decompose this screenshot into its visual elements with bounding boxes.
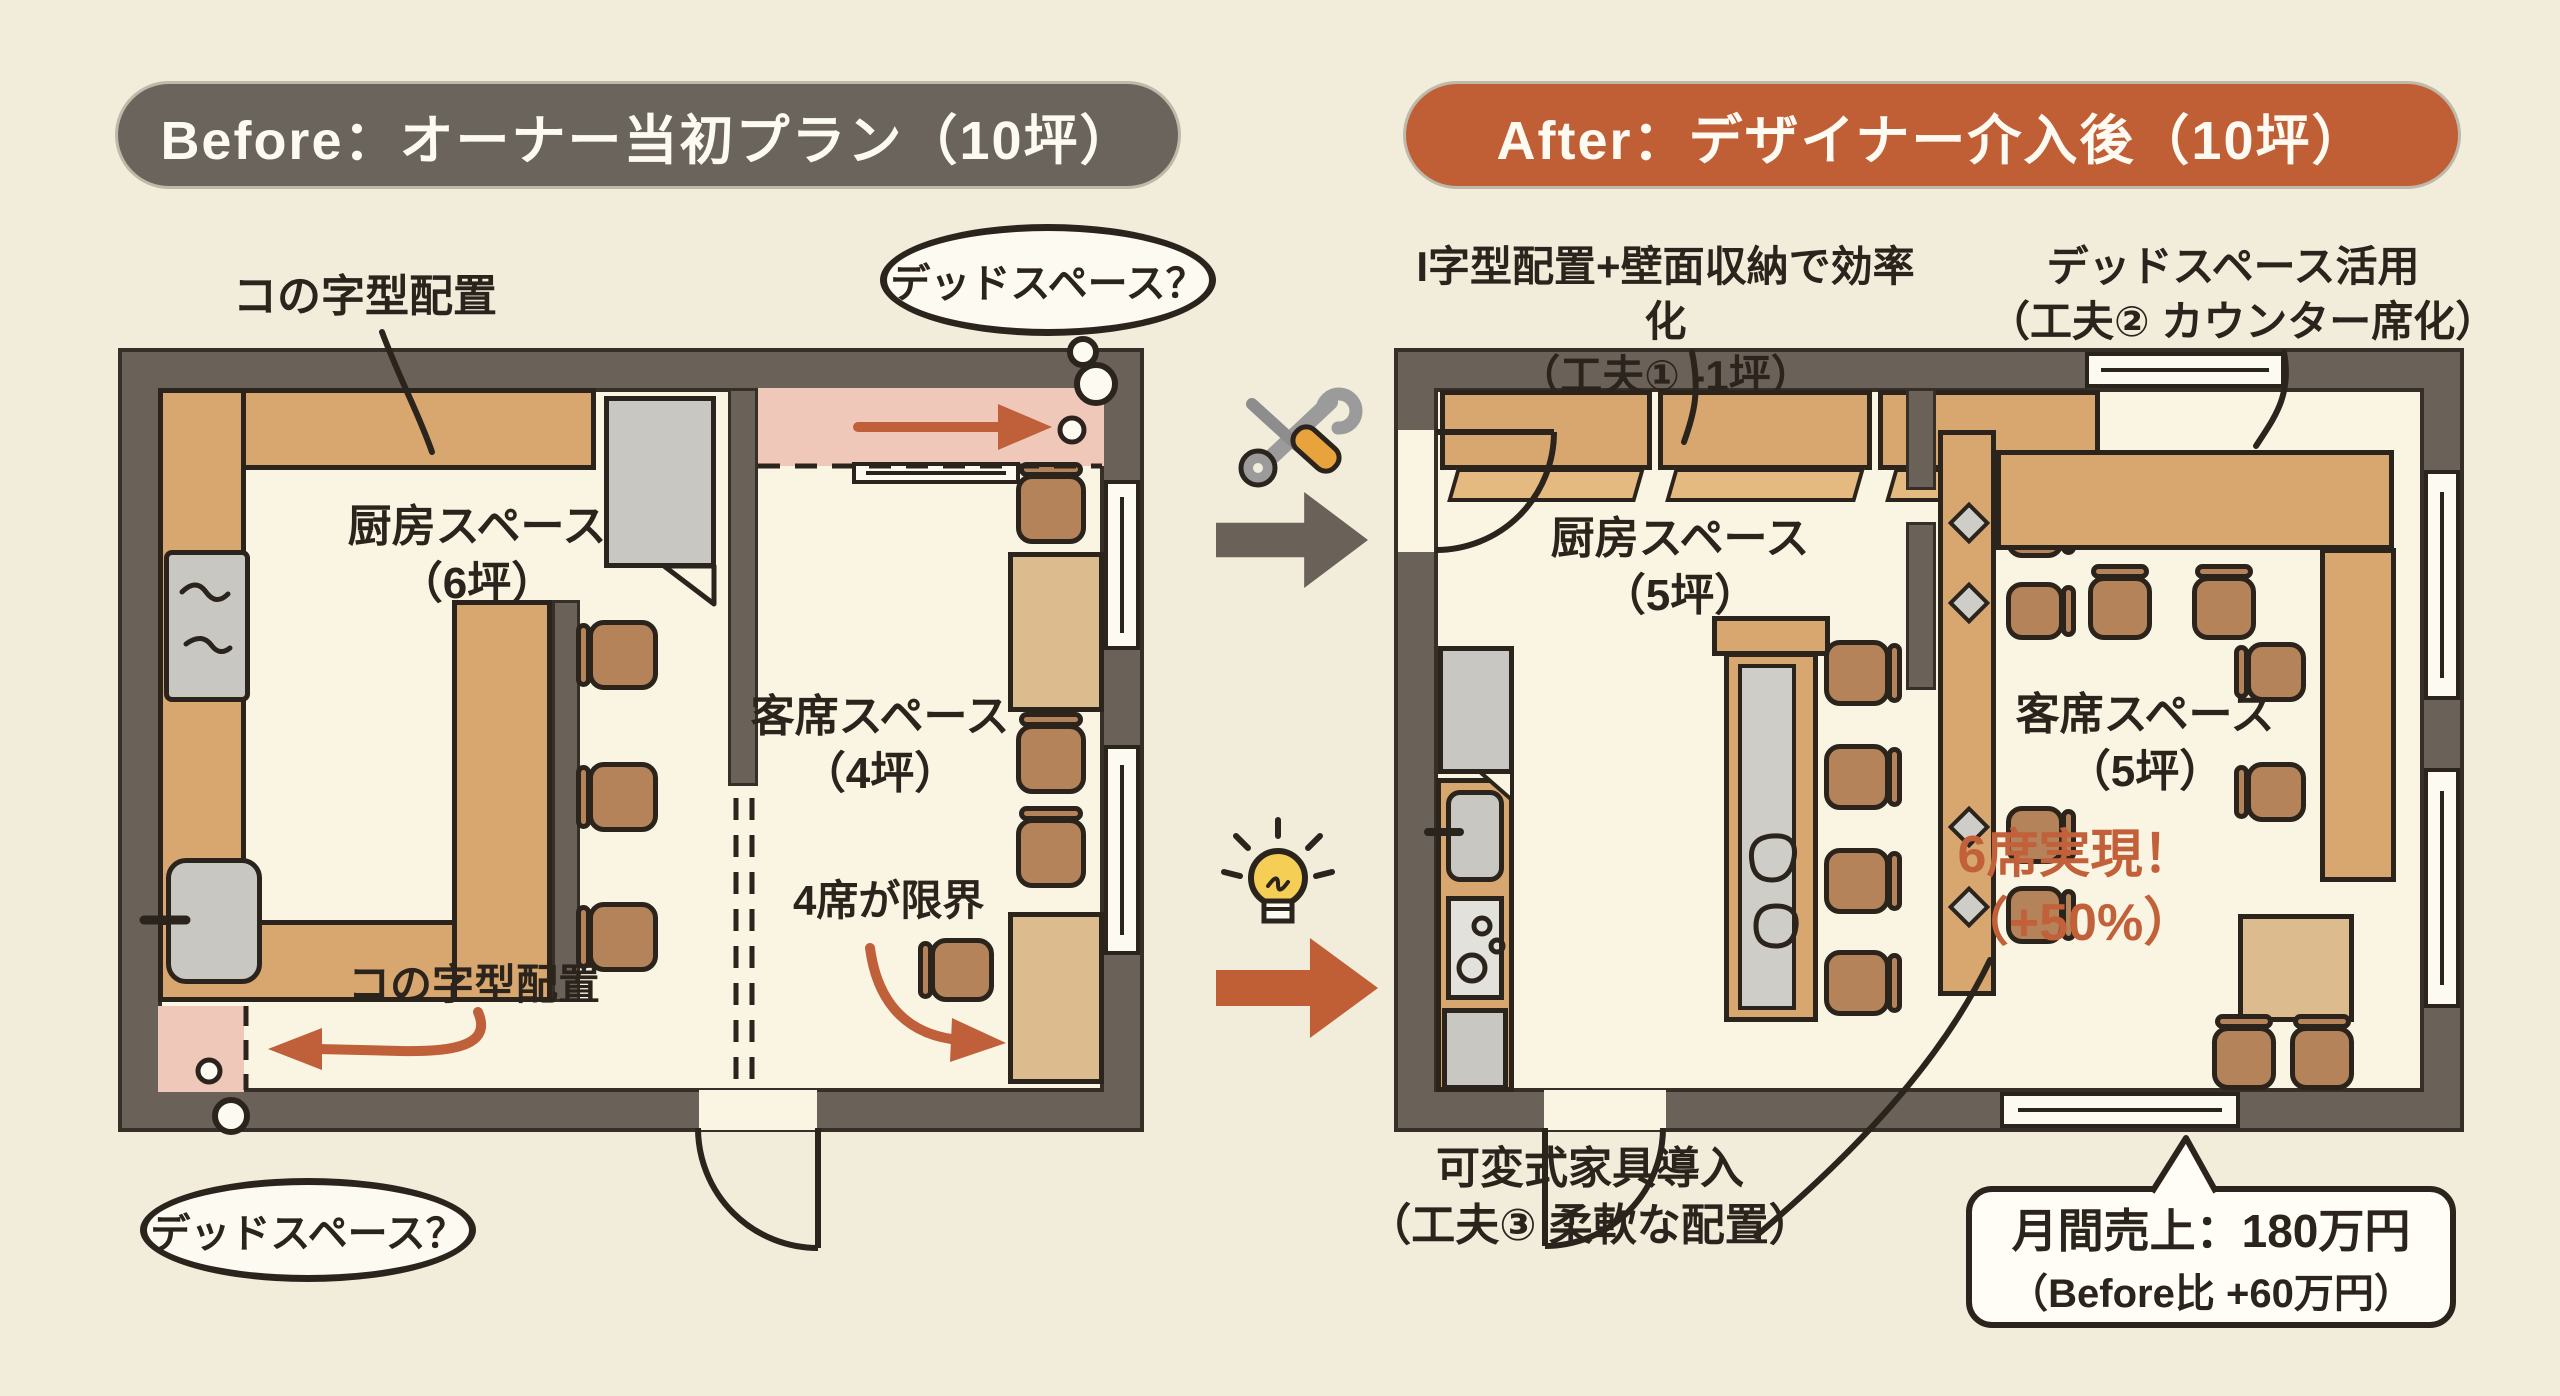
after-dining-label: 客席スペース （5坪） bbox=[1995, 686, 2295, 800]
bubble-text: デッドスペース？ bbox=[890, 251, 1205, 309]
after-island-stool bbox=[1824, 640, 1890, 706]
before-dining-table bbox=[1008, 912, 1104, 1084]
after-counter-seat bbox=[2006, 582, 2064, 640]
before-dining-label: 客席スペース （4坪） bbox=[730, 688, 1030, 802]
after-movable-chair bbox=[2212, 1026, 2276, 1090]
after-dishwasher bbox=[1442, 1008, 1508, 1090]
after-cabinet-front bbox=[1665, 468, 1865, 502]
before-counter-stool bbox=[588, 762, 658, 832]
before-dead-space-top bbox=[758, 388, 1104, 466]
after-entrance-gap bbox=[1544, 1090, 1666, 1130]
after-divider-wall bbox=[1906, 522, 1936, 690]
before-dining-stool bbox=[1016, 474, 1086, 544]
before-counter-return-column bbox=[452, 600, 552, 1002]
dead-space-bubble-top: デッドスペース？ bbox=[880, 224, 1216, 336]
before-sink bbox=[166, 858, 262, 984]
revenue-text: 月間売上：180万円 bbox=[2012, 1195, 2411, 1261]
before-dining-stool bbox=[930, 938, 994, 1002]
label-text: （6坪） bbox=[327, 555, 627, 612]
before-dining-stool bbox=[1016, 818, 1086, 888]
dead-space-bubble-bottom: デッドスペース？ bbox=[140, 1178, 476, 1282]
before-title-banner: Before：オーナー当初プラン（10坪） bbox=[118, 84, 1178, 186]
after-dining-counter-top bbox=[1996, 450, 2394, 550]
label-text: 客席スペース bbox=[730, 688, 1030, 745]
before-counter-stool bbox=[588, 620, 658, 690]
after-cabinet-front bbox=[1447, 468, 1645, 502]
before-window bbox=[1104, 480, 1140, 650]
annotation-text: （工夫③ 柔軟な配置） bbox=[1340, 1197, 1840, 1254]
after-improvement3-annotation: 可変式家具導入 （工夫③ 柔軟な配置） bbox=[1340, 1140, 1840, 1254]
after-improvement1-annotation: I字型配置+壁面収納で効率化 （工夫① -1坪） bbox=[1398, 240, 1933, 404]
after-island-stool bbox=[1824, 848, 1890, 914]
annotation-text: （工夫② カウンター席化） bbox=[1988, 295, 2478, 350]
after-seats-achieved-label: 6席実現！ （+50%） bbox=[1918, 822, 2234, 957]
after-island-stool bbox=[1824, 950, 1890, 1016]
after-improvement2-annotation: デッドスペース活用 （工夫② カウンター席化） bbox=[1988, 240, 2478, 349]
annotation-text: （工夫① -1坪） bbox=[1398, 349, 1933, 404]
label-text: 厨房スペース bbox=[1530, 510, 1830, 567]
label-text: コの字型配置 bbox=[348, 961, 600, 1008]
label-text: 厨房スペース bbox=[327, 498, 627, 555]
after-window bbox=[2000, 1092, 2240, 1128]
label-text: 客席スペース bbox=[1995, 686, 2295, 743]
annotation-text: I字型配置+壁面収納で効率化 bbox=[1398, 240, 1933, 349]
after-top-window bbox=[2085, 352, 2285, 388]
before-title: Before：オーナー当初プラン（10坪） bbox=[160, 96, 1135, 175]
label-text: 6席実現！ bbox=[1918, 822, 2234, 890]
before-pass-through bbox=[852, 462, 1020, 484]
annotation-text: デッドスペース活用 bbox=[1988, 240, 2478, 295]
before-kitchen-label: 厨房スペース （6坪） bbox=[327, 498, 627, 612]
before-bottom-arrangement-label: コの字型配置 bbox=[348, 958, 600, 1013]
before-seat-limit-label: 4席が限界 bbox=[793, 874, 984, 929]
after-sink bbox=[1446, 790, 1504, 882]
after-dining-chair bbox=[2088, 576, 2152, 640]
door-arc bbox=[698, 1128, 818, 1248]
idea-arrow-icon bbox=[1216, 938, 1378, 1038]
before-dead-space-bottom bbox=[158, 1006, 244, 1092]
before-top-arrangement-label: コの字型配置 bbox=[215, 268, 515, 325]
annotation-text: 可変式家具導入 bbox=[1340, 1140, 1840, 1197]
after-dining-counter-right bbox=[2320, 548, 2396, 882]
after-movable-chair bbox=[2290, 1026, 2354, 1090]
bubble-text: デッドスペース？ bbox=[150, 1201, 465, 1259]
after-back-door-gap bbox=[1398, 430, 1434, 552]
before-to-after-arrow-icon bbox=[1216, 492, 1368, 588]
label-text: （5坪） bbox=[1530, 567, 1830, 624]
label-text: （4坪） bbox=[730, 745, 1030, 802]
after-island-stool bbox=[1824, 744, 1890, 810]
callout-tail bbox=[2152, 1138, 2216, 1192]
lightbulb-icon bbox=[1224, 820, 1332, 921]
floor-plan-comparison-diagram: Before：オーナー当初プラン（10坪） After：デザイナー介入後（10坪… bbox=[0, 0, 2560, 1396]
before-stove bbox=[164, 550, 250, 702]
after-movable-table bbox=[2238, 914, 2354, 1022]
tools-icon bbox=[1241, 394, 1356, 485]
revenue-text: （Before比 +60万円） bbox=[2008, 1261, 2414, 1319]
label-text: 4席が限界 bbox=[793, 877, 984, 924]
after-island-worktop bbox=[1738, 664, 1796, 1010]
before-entrance-gap bbox=[699, 1090, 817, 1130]
after-window bbox=[2424, 470, 2460, 700]
after-window bbox=[2424, 768, 2460, 1008]
after-kitchen-label: 厨房スペース （5坪） bbox=[1530, 510, 1830, 624]
after-fridge bbox=[1438, 646, 1514, 774]
label-text: （5坪） bbox=[1995, 743, 2295, 800]
after-title: After：デザイナー介入後（10坪） bbox=[1497, 96, 2368, 175]
label-text: （+50%） bbox=[1918, 890, 2234, 958]
after-dining-chair bbox=[2192, 576, 2256, 640]
after-stove bbox=[1446, 896, 1504, 1000]
monthly-revenue-callout: 月間売上：180万円 （Before比 +60万円） bbox=[1966, 1186, 2456, 1328]
before-window bbox=[1104, 745, 1140, 955]
after-title-banner: After：デザイナー介入後（10坪） bbox=[1406, 84, 2458, 186]
label-text: コの字型配置 bbox=[233, 272, 497, 321]
